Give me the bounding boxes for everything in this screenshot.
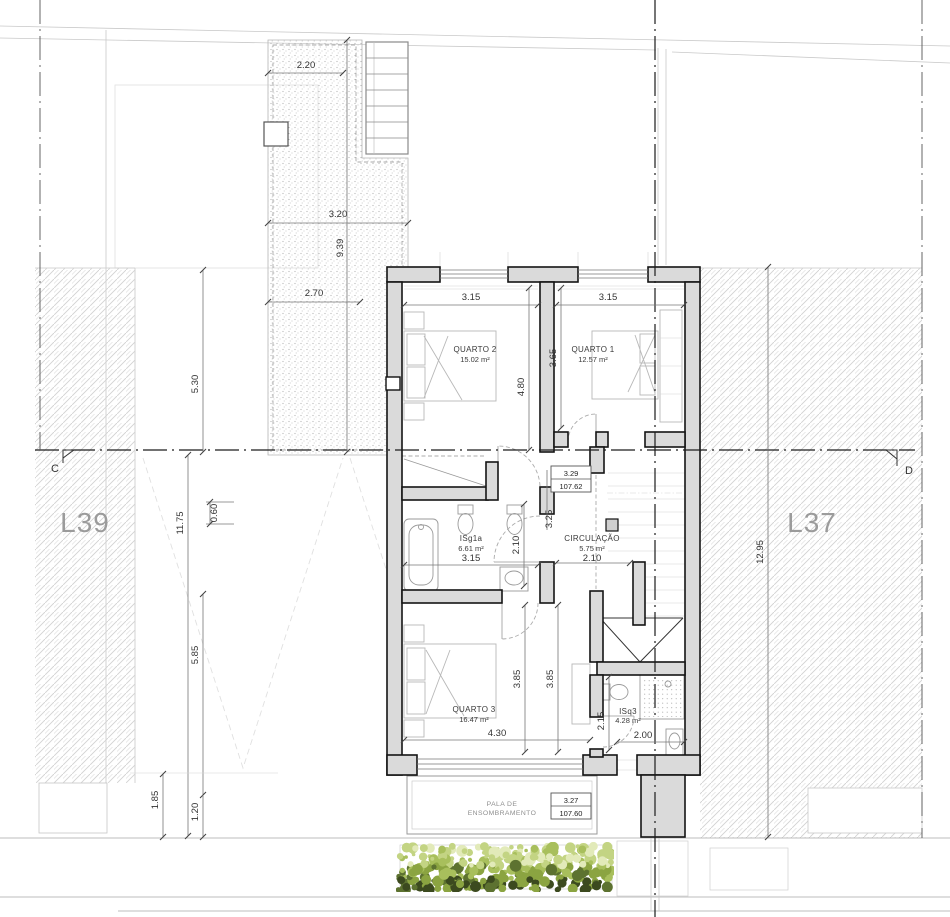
area-quarto3: 16.47 m² (459, 715, 489, 724)
dim-terrace-939: 9.39 (335, 239, 346, 258)
level-upper-height: 3.29 (564, 469, 579, 478)
level-lower-elevation: 107.60 (560, 809, 583, 818)
dim-site-185: 1.85 (150, 791, 161, 810)
level-lower-height: 3.27 (564, 796, 579, 805)
area-isg1a: 6.61 m² (458, 544, 484, 553)
label-quarto2: QUARTO 2 (453, 345, 496, 354)
dim-isq3-width: 2.00 (634, 730, 653, 741)
level-marker-lower: 3.27 107.60 (551, 793, 591, 819)
level-upper-elevation: 107.62 (560, 482, 583, 491)
section-label-d: D (905, 465, 913, 477)
dim-terrace-270: 2.70 (305, 288, 324, 299)
right-lot-paving (808, 788, 922, 833)
neighbor-lot-hatch-right (700, 268, 922, 838)
dim-q2-height: 4.80 (516, 378, 527, 397)
dim-circ-width: 2.10 (583, 553, 602, 564)
canopy-label-line2: ENSOMBRAMENTO (468, 810, 537, 817)
dim-q1-height: 3.65 (548, 349, 559, 368)
hedge-vegetation (396, 842, 617, 896)
area-quarto2: 15.02 m² (460, 355, 490, 364)
dim-isg1a-height: 2.10 (511, 536, 522, 555)
dim-site-530: 5.30 (190, 375, 201, 394)
left-wall-vent (386, 377, 400, 390)
label-isq3: ISq3 (619, 707, 637, 716)
area-circulacao: 5.75 m² (579, 544, 605, 553)
section-label-c: C (51, 463, 59, 475)
lot-label-l39: L39 (60, 507, 110, 538)
dim-q2-width: 3.15 (462, 292, 481, 303)
exterior-stair-ladder (366, 42, 408, 154)
dim-q3-height-b: 3.85 (545, 670, 556, 689)
dim-site-1175: 11.75 (175, 511, 186, 534)
area-isq3: 4.28 m² (615, 716, 641, 725)
label-quarto3: QUARTO 3 (452, 705, 495, 714)
area-quarto1: 12.57 m² (578, 355, 608, 364)
dim-q3-width: 4.30 (488, 728, 507, 739)
dim-terrace-320: 3.20 (329, 209, 348, 220)
level-marker-upper: 3.29 107.62 (551, 466, 591, 492)
dim-terrace-220: 2.20 (297, 60, 316, 71)
terrace-planter-box (264, 122, 288, 146)
structural-column (606, 519, 618, 531)
dim-site-1295: 12.95 (755, 540, 766, 564)
dim-isg1a-width: 3.15 (462, 553, 481, 564)
label-quarto1: QUARTO 1 (571, 345, 614, 354)
floor-plan-canvas: PALA DE ENSOMBRAMENTO (0, 0, 950, 917)
dim-site-120: 1.20 (190, 803, 201, 822)
lot-label-l37: L37 (787, 507, 837, 538)
dim-site-060: 0.60 (209, 504, 220, 523)
shower-isq3 (640, 675, 684, 719)
canopy-label-line1: PALA DE (487, 801, 518, 808)
dim-circ-height: 3.25 (544, 510, 555, 529)
desk-quarto3 (572, 664, 590, 724)
floor-plan-drawing: PALA DE ENSOMBRAMENTO (0, 0, 950, 917)
dim-isq3-height: 2.15 (596, 712, 607, 731)
yard-slope-marks (143, 458, 387, 768)
dim-q1-width: 3.15 (599, 292, 618, 303)
dim-site-585: 5.85 (190, 646, 201, 665)
dim-q3-height-a: 3.85 (512, 670, 523, 689)
label-circulacao: CIRCULAÇÃO (564, 534, 619, 543)
label-isg1a: ISg1a (460, 534, 483, 543)
